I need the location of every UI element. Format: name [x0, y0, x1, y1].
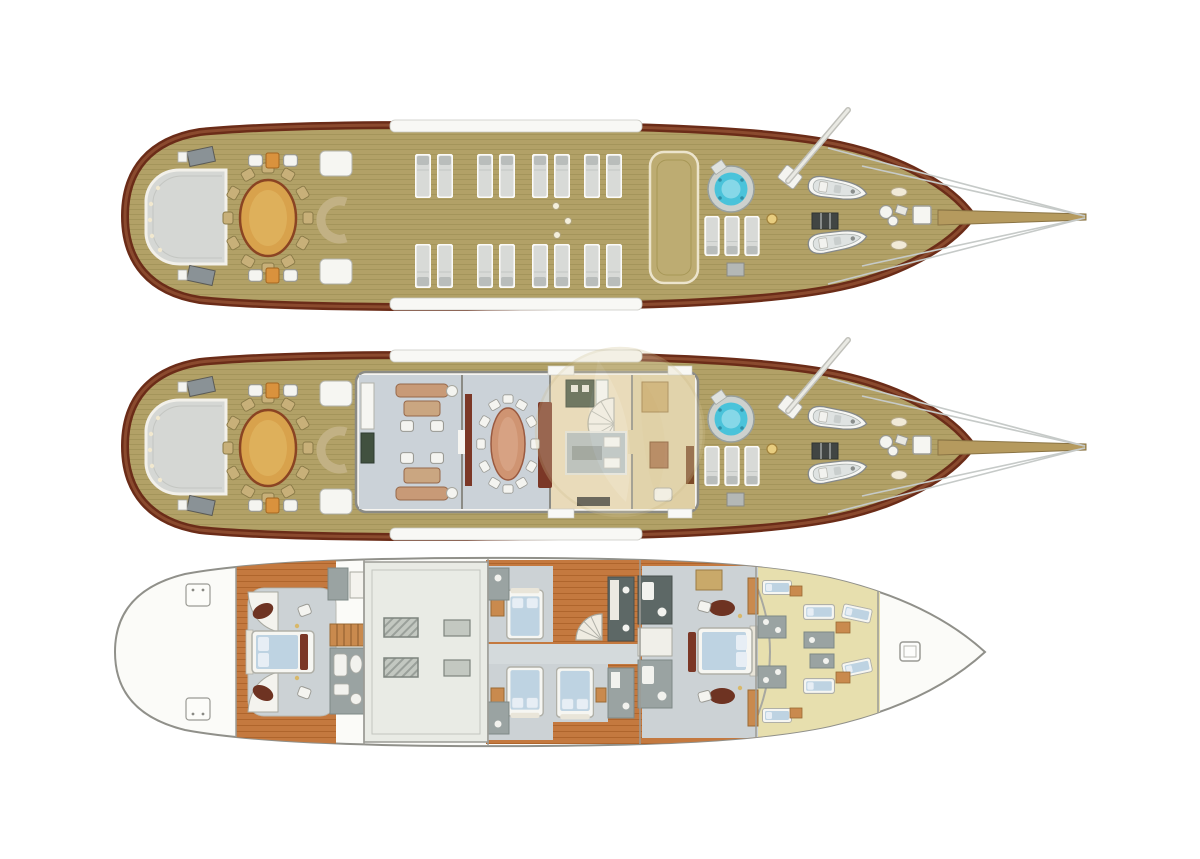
coffee-table [404, 401, 440, 416]
bath-fixture [623, 703, 630, 710]
engine-room [364, 562, 488, 742]
sun-lounger [478, 245, 493, 288]
crew-locker [836, 622, 850, 633]
bath-fixture [611, 672, 620, 688]
sun-lounger [500, 155, 515, 198]
bath-vanity [334, 654, 347, 676]
lamp-dot [738, 614, 742, 618]
crew-bathroom [758, 616, 786, 638]
bed-foot-bench [688, 632, 696, 672]
armchair [431, 421, 444, 432]
master-closet-white [350, 572, 365, 598]
sun-lounger [438, 245, 453, 288]
corridor [488, 644, 640, 664]
crew-locker [790, 708, 802, 718]
deck-light [554, 232, 561, 239]
deckhouse-door [668, 509, 692, 518]
bath-fixture [642, 582, 654, 600]
crew-bunk [763, 709, 792, 723]
crew-bathroom [804, 632, 834, 648]
sun-lounger [555, 245, 570, 288]
guest-bed [557, 668, 594, 720]
crew-bathroom [810, 654, 834, 668]
bath-fixture [642, 666, 654, 684]
interior-dining-chair [503, 395, 513, 403]
crew-bunk [763, 581, 792, 595]
bath-fixture [763, 677, 769, 683]
bed-foot-bench [300, 634, 308, 670]
bath-fixture [763, 619, 769, 625]
lazarette-hatch [186, 584, 210, 606]
crew-bathroom [758, 666, 786, 688]
interior-dining-chair [477, 439, 485, 449]
guest-bathroom [488, 702, 509, 734]
hatch-dot [192, 713, 195, 716]
sun-lounger [478, 155, 493, 198]
interior-dining-table-top [498, 417, 518, 471]
sun-lounger [533, 155, 548, 198]
sun-lounger [416, 245, 431, 288]
crew-bunk [804, 605, 835, 620]
salon-sofa [396, 487, 448, 500]
vip-side-table [709, 688, 735, 704]
generator-block [444, 660, 470, 676]
coffee-table [404, 468, 440, 483]
vip-pillow [736, 635, 747, 650]
sun-lounger [555, 155, 570, 198]
side-table [447, 488, 458, 499]
interior-dining-chair [503, 485, 513, 493]
lamp-dot [295, 624, 299, 628]
sun-lounger [533, 245, 548, 288]
sun-lounger [607, 245, 622, 288]
lamp-dot [738, 686, 742, 690]
armchair [401, 453, 414, 464]
bath-fixture [658, 608, 667, 617]
bath-shower [334, 684, 349, 695]
crew-locker [836, 672, 850, 683]
bath-fixture [823, 658, 829, 664]
vip-closet [638, 628, 672, 656]
nightstand [596, 688, 606, 702]
generator-block [444, 620, 470, 636]
master-closet [328, 568, 348, 600]
deck-light [565, 218, 572, 225]
sun-lounger [607, 155, 622, 198]
door-opening [458, 430, 466, 454]
deck-plan-canvas [0, 0, 1200, 859]
engine-block [384, 618, 418, 637]
armchair [401, 421, 414, 432]
sideboard [361, 383, 374, 429]
lower-deck-plan [115, 558, 985, 746]
vip-pillow [736, 652, 747, 667]
bath-fixture [775, 627, 781, 633]
lazarette-hatch [186, 698, 210, 720]
sun-deck-hull [125, 110, 1086, 310]
side-table [447, 386, 458, 397]
sun-lounger [416, 155, 431, 198]
watermark-logo [536, 348, 704, 516]
bath-fixture [495, 575, 502, 582]
hatch-dot [192, 589, 195, 592]
lamp-dot [295, 676, 299, 680]
vip-side-table [709, 600, 735, 616]
bath-vanity [610, 580, 619, 620]
master-pillow [258, 637, 269, 651]
deck-light [553, 203, 560, 210]
hatch-dot [202, 713, 205, 716]
tv-cabinet [361, 433, 374, 463]
nightstand [491, 600, 504, 616]
bath-fixture [809, 637, 815, 643]
bath-fixture [775, 669, 781, 675]
bath-fixture [495, 721, 502, 728]
forepeak-hatch [900, 642, 920, 661]
vip-wardrobe [696, 570, 722, 590]
guest-bed [507, 667, 543, 718]
bath-toilet [351, 694, 362, 705]
sun-lounger [438, 155, 453, 198]
engine-block [384, 658, 418, 677]
sun-lounger [585, 155, 600, 198]
hatch-dot [202, 589, 205, 592]
bath-fixture [623, 587, 630, 594]
bath-fixture [658, 692, 667, 701]
yacht-deck-plans-page [0, 0, 1200, 859]
guest-bathroom [488, 568, 509, 600]
bath-fixture [623, 625, 630, 632]
dining-bench [465, 394, 472, 486]
sun-deck-plan [125, 110, 1086, 310]
deckhouse-door [548, 509, 574, 518]
guest-bed [507, 588, 543, 639]
sun-lounger [585, 245, 600, 288]
crew-locker [790, 586, 802, 596]
master-pillow [258, 653, 269, 667]
salon-sofa [396, 384, 448, 397]
crew-bunk [804, 679, 835, 694]
sun-lounger [500, 245, 515, 288]
armchair [431, 453, 444, 464]
bath-sink [350, 655, 362, 673]
lower-deck-interior [186, 558, 920, 746]
